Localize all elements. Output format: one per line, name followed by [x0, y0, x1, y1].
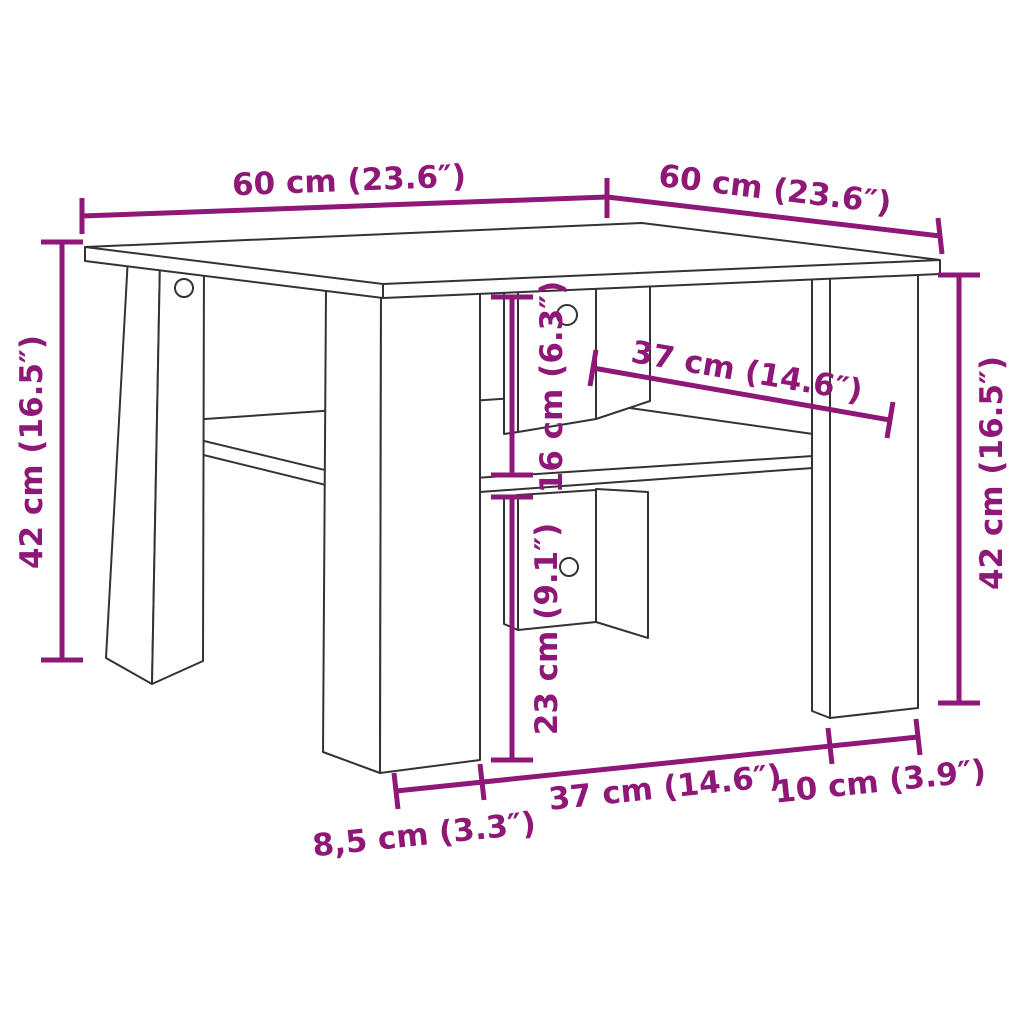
right-leg-side [812, 271, 830, 718]
dimension-shelf-to-floor-label: 23 cm (9.1″) [529, 523, 565, 736]
center-support-lower-wing [596, 489, 648, 638]
dimension-height-left-label: 42 cm (16.5″) [14, 335, 50, 569]
shelf [175, 396, 813, 499]
dimension-top-to-shelf-label: 16 cm (6.3″) [534, 281, 570, 494]
dimension-base-span-label: 37 cm (14.6″) [547, 758, 784, 818]
dimension-leg-depth-right-label: 10 cm (3.9″) [773, 753, 988, 811]
left-back-leg-front [152, 257, 204, 684]
right-leg [812, 268, 918, 718]
left-back-leg [106, 257, 204, 684]
left-back-leg-side [106, 257, 160, 684]
dimension-shelf-to-floor: 23 cm (9.1″) [491, 497, 565, 760]
dimension-top-width-label: 60 cm (23.6″) [231, 158, 466, 203]
shelf-outline [175, 396, 813, 499]
dimension-height-right-label: 42 cm (16.5″) [974, 356, 1010, 590]
front-leg-front [380, 291, 480, 773]
dimension-top-width: 60 cm (23.6″) [82, 158, 607, 234]
dimension-height-right: 42 cm (16.5″) [938, 275, 1010, 703]
dimension-height-left: 42 cm (16.5″) [14, 242, 83, 660]
dimension-top-depth-label: 60 cm (23.6″) [657, 158, 894, 221]
front-leg [323, 289, 480, 773]
coffee-table-dimension-diagram: 60 cm (23.6″) 60 cm (23.6″) 42 cm (16.5″… [0, 0, 1024, 1024]
right-leg-front [830, 268, 918, 718]
front-leg-side [323, 289, 381, 773]
center-support-lower [504, 489, 648, 638]
dimension-leg-depth-left-label: 8,5 cm (3.3″) [311, 805, 538, 864]
